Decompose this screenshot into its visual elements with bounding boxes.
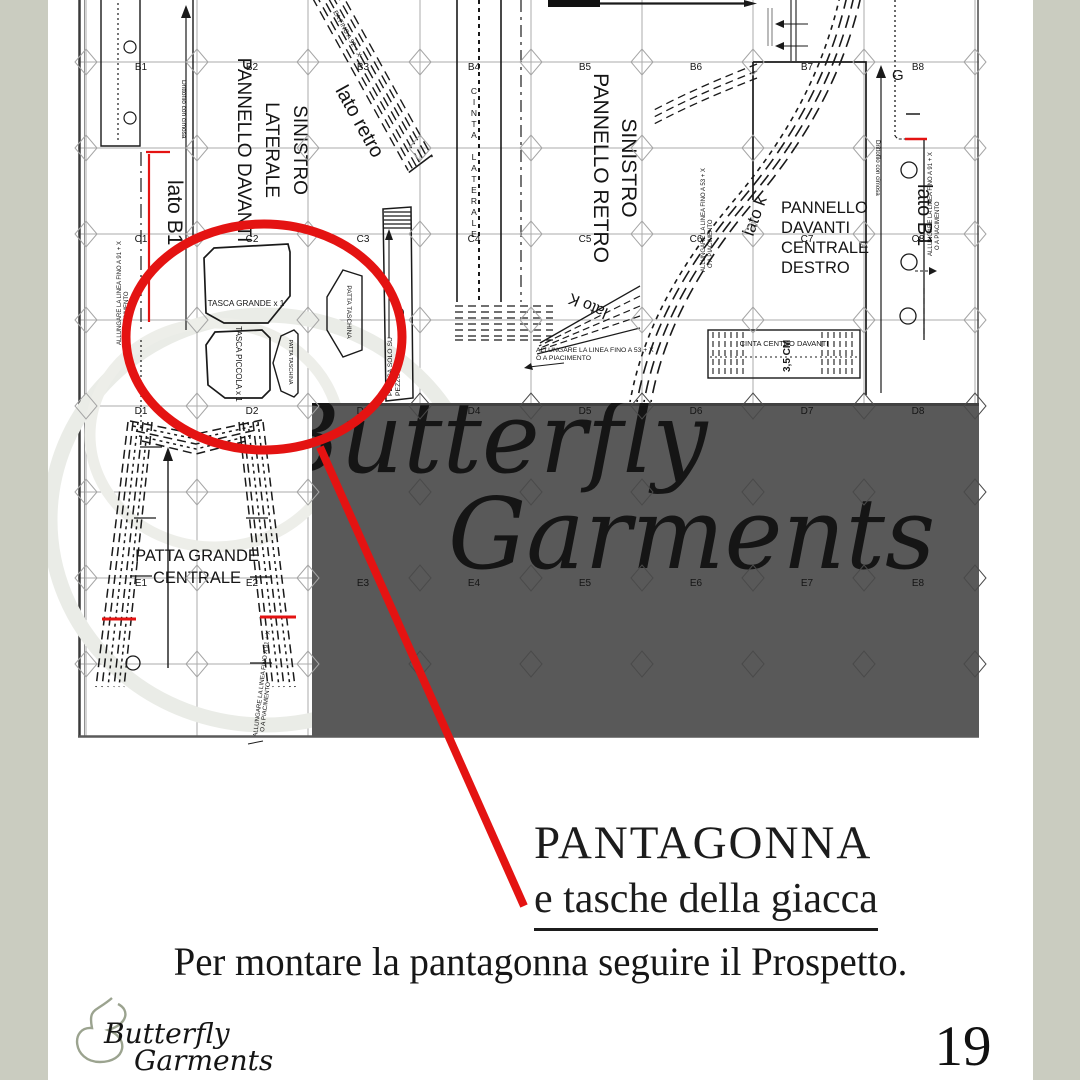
grid-label-C6: C6 (690, 234, 703, 245)
grid-label-E6: E6 (690, 578, 703, 589)
label-patta-taschina-2: PATTA TASCHINA (345, 285, 352, 339)
label-pannello-centrale-2: DAVANTI (781, 219, 850, 237)
grid-label-E1: E1 (135, 578, 148, 589)
label-tasca-piccola: TASCA PICCOLA x 1 (234, 326, 243, 402)
grid-label-C7: C7 (801, 234, 814, 245)
grid-label-E3: E3 (357, 578, 370, 589)
grid-label-C2: C2 (246, 234, 259, 245)
label-pannello-centrale-4: DESTRO (781, 259, 850, 277)
label-pannello-centrale-1: PANNELLO (781, 199, 868, 217)
label-pannello-davanti-laterale-3: SINISTRO (289, 105, 310, 195)
grid-label-D4: D4 (468, 406, 481, 417)
grid-label-B8: B8 (912, 62, 925, 73)
label-patta-grande-1: PATTA GRANDE (135, 547, 259, 565)
grid-label-B1: B1 (135, 62, 148, 73)
grid-label-E7: E7 (801, 578, 814, 589)
grainline-arrow-left (181, 5, 191, 330)
piece-pannello-davanti-centrale (753, 0, 866, 395)
grid-label-B2: B2 (246, 62, 259, 73)
label-tasca-grande: TASCA GRANDE x 1 (208, 299, 285, 308)
label-drittofilo-1: Drittofilo con cimosa (180, 80, 187, 139)
label-pannello-davanti-laterale-1: PANNELLO DAVANTI (233, 58, 254, 243)
grainline-arrow-right (876, 65, 886, 393)
label-pannello-centrale-3: CENTRALE (781, 239, 869, 257)
grid-label-D5: D5 (579, 406, 592, 417)
grid-label-E2: E2 (246, 578, 259, 589)
label-pannello-davanti-laterale-2: LATERALE (261, 102, 282, 198)
grid-label-C4: C4 (468, 234, 481, 245)
label-pannello-retro-2: SINISTRO (617, 118, 640, 217)
piece-patta-taschina-large (327, 270, 362, 357)
brand-logo: Butterfly Garments (77, 998, 273, 1077)
page-canvas: PANNELLO DAVANTI LATERALE SINISTRO lato … (0, 0, 1080, 1080)
grid-label-D6: D6 (690, 406, 703, 417)
label-allungare-53-h2: O A PIACIMENTO (536, 355, 591, 362)
caption-block: PANTAGONNA e tasche della giacca (534, 820, 878, 931)
grid-label-B4: B4 (468, 62, 481, 73)
grid-label-E8: E8 (912, 578, 925, 589)
grid-label-B5: B5 (579, 62, 592, 73)
grid-label-C8: C8 (912, 234, 925, 245)
label-allungare-91-right-2: O A PIACIMENTO (935, 201, 941, 250)
instruction-text: Per montare la pantagonna seguire il Pro… (63, 938, 1018, 985)
grid-label-C5: C5 (579, 234, 592, 245)
watermark-line2: Garments (448, 478, 935, 592)
label-lato-b1-left: lato B1 (163, 180, 186, 245)
grid-label-C3: C3 (357, 234, 370, 245)
grid-label-D8: D8 (912, 406, 925, 417)
label-patta-grande-2: CENTRALE (153, 569, 241, 587)
label-allungare-53-v2: O A PIACIMENTO (708, 219, 714, 268)
grid-label-B3: B3 (357, 62, 370, 73)
grid-label-B6: B6 (690, 62, 703, 73)
label-cinta-laterale: CINTA LATERALE (469, 86, 479, 240)
grid-label-B7: B7 (801, 62, 814, 73)
label-patta-taschina-1: PATTA TASCHINA (287, 339, 293, 384)
top-measure-arrow (548, 0, 757, 7)
page-subtitle: e tasche della giacca (534, 875, 878, 931)
label-allungare-91-right-1: ALLUNGARE LA LINEA FINO A 91 + X (928, 152, 934, 256)
page-number: 19 (918, 1014, 1008, 1079)
grid-label-D7: D7 (801, 406, 814, 417)
logo-line2: Garments (134, 1044, 273, 1077)
label-lato-retro: lato retro (331, 82, 389, 162)
grid-label-E4: E4 (468, 578, 481, 589)
label-cinta-centro-size: 3,5 CM (782, 340, 793, 372)
label-g: G (892, 67, 904, 84)
grid-label-E5: E5 (579, 578, 592, 589)
label-allungare-53-h1: ALLUNGARE LA LINEA FINO A 53 + X (536, 347, 654, 354)
grid-label-D2: D2 (246, 406, 259, 417)
piece-left-placket (101, 0, 140, 146)
label-allungare-53-v1: ALLUNGARE LA LINEA FINO A 53 + X (701, 168, 707, 272)
grid-label-D1: D1 (135, 406, 148, 417)
label-pannello-retro-1: PANNELLO RETRO (589, 73, 612, 263)
page-title: PANTAGONNA (534, 820, 878, 867)
grid-label-C1: C1 (135, 234, 148, 245)
